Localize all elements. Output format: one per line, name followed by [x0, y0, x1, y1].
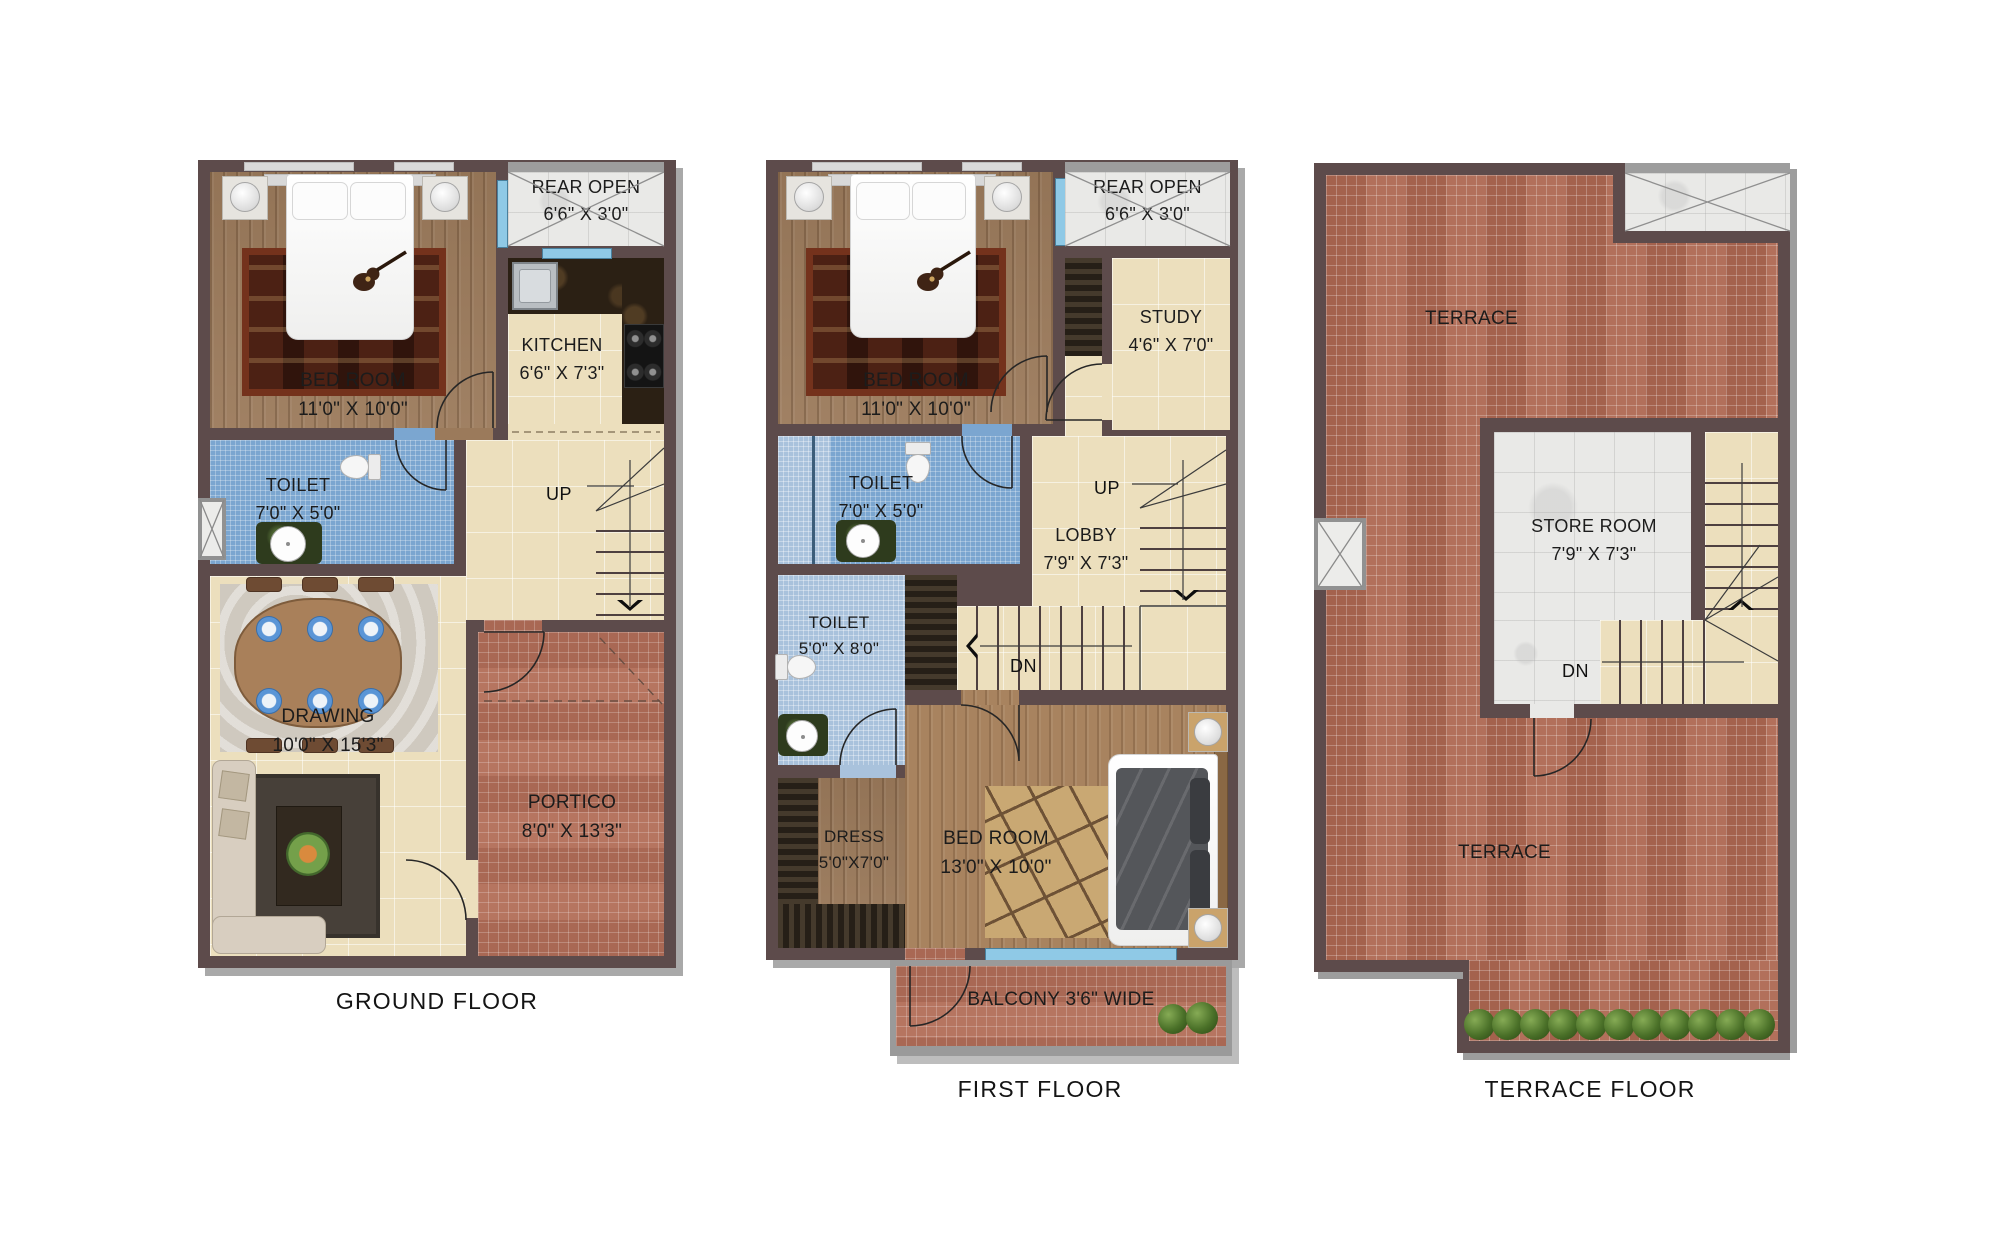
first-floor-plan: BED ROOM 11'0" X 10'0" REAR OPEN 6'6" X …: [766, 160, 1238, 1068]
lamp-icon: [430, 182, 460, 212]
plant-icon: [1660, 1009, 1691, 1040]
wash-basin: [846, 524, 880, 558]
plant-icon: [1716, 1009, 1747, 1040]
lamp-icon: [992, 182, 1022, 212]
pillow: [1190, 850, 1210, 916]
lamp-icon: [794, 182, 824, 212]
plate: [307, 616, 333, 642]
terrace-wall: [1778, 163, 1790, 1053]
sofa: [212, 916, 326, 954]
room-label-rear-open: REAR OPEN 6'6" X 3'0": [510, 174, 662, 228]
room-name: DRESS: [806, 824, 902, 850]
kitchen-opening: [508, 424, 664, 440]
pillow: [292, 182, 348, 220]
dining-chair: [302, 577, 338, 592]
floor-plan-sheet: BED ROOM 11'0" X 10'0" REAR OPEN 6'6" X …: [0, 0, 2000, 1235]
room-size: 7'0" X 5'0": [806, 498, 956, 526]
plant-icon: [1548, 1009, 1579, 1040]
room-label-dress: DRESS 5'0"X7'0": [806, 824, 902, 875]
stair-direction-down: DN: [1562, 661, 1589, 682]
room-size: 8'0" X 13'3": [484, 817, 660, 846]
balcony-block: BALCONY 3'6" WIDE: [890, 960, 1232, 1056]
plate: [256, 616, 282, 642]
bedroom-window: [962, 162, 1022, 171]
room-label-toilet2: TOILET 5'0" X 8'0": [780, 610, 898, 661]
bedroom-window: [812, 162, 922, 171]
dining-chair: [246, 577, 282, 592]
room-size: 11'0" X 10'0": [253, 395, 453, 424]
toilet1-door-opening: [962, 424, 1012, 436]
staircase-treads: [1705, 463, 1778, 620]
room-size: 7'9" X 7'3": [1509, 541, 1679, 569]
room-size: 5'0" X 8'0": [780, 636, 898, 662]
portico-door-opening: [466, 860, 478, 918]
room-label-study: STUDY 4'6" X 7'0": [1112, 304, 1230, 360]
pillow: [912, 182, 966, 220]
roof-band: [1318, 972, 1463, 979]
bedroom2-door-opening: [961, 690, 1019, 705]
pillow: [1190, 778, 1210, 844]
store-door-opening: [1530, 704, 1574, 718]
room-size: 6'6" X 3'0": [510, 201, 662, 228]
bay-wall: [1613, 231, 1790, 243]
room-name: LOBBY: [1011, 522, 1161, 550]
room-size: 5'0"X7'0": [806, 850, 902, 876]
lamp-icon: [1194, 914, 1222, 942]
room-label-lobby: LOBBY 7'9" X 7'3": [1011, 522, 1161, 578]
pillow: [856, 182, 910, 220]
store-wall: [1480, 704, 1790, 718]
terrace-floor-plan: DN STORE ROOM 7'9" X 7'3" TERRACE TERRAC…: [1314, 163, 1798, 1065]
room-name: TOILET: [780, 610, 898, 636]
stair-arrow-icon: [1173, 590, 1199, 601]
stair-direction-up: UP: [546, 484, 572, 505]
plant-icon: [1492, 1009, 1523, 1040]
plant-icon: [1520, 1009, 1551, 1040]
wash-basin: [786, 720, 818, 752]
room-label-rear-open: REAR OPEN 6'6" X 3'0": [1067, 174, 1228, 228]
room-label-terrace-bottom: TERRACE: [1442, 843, 1567, 864]
room-name: STORE ROOM: [1509, 513, 1679, 541]
room-name: PORTICO: [484, 788, 660, 817]
bedroom-window: [394, 162, 454, 171]
room-label-terrace-top: TERRACE: [1409, 309, 1534, 330]
plant-icon: [1604, 1009, 1635, 1040]
cushion: [218, 808, 250, 840]
plate: [358, 616, 384, 642]
room-label-toilet1: TOILET 7'0" X 5'0": [806, 470, 956, 526]
dining-chair: [358, 577, 394, 592]
lamp-icon: [230, 182, 260, 212]
room-label-bedroom2: BED ROOM 13'0" X 10'0": [916, 824, 1076, 883]
cushion: [218, 770, 250, 802]
plant-icon: [1158, 1004, 1188, 1034]
pillow: [350, 182, 406, 220]
wardrobe: [905, 575, 957, 690]
bedroom-side-window: [497, 180, 508, 248]
bedroom-window: [244, 162, 354, 171]
ground-floor-plan: BED ROOM 11'0" X 10'0" REAR OPEN 6'6" X …: [198, 160, 676, 968]
store-wall: [1480, 418, 1494, 718]
room-name: TOILET: [223, 472, 373, 500]
room-size: 11'0" X 10'0": [816, 395, 1016, 424]
room-size: 6'6" X 7'3": [504, 360, 620, 388]
room-size: 4'6" X 7'0": [1112, 332, 1230, 360]
plant-icon: [1744, 1009, 1775, 1040]
wardrobe: [778, 904, 905, 948]
stair-arrow-icon: [617, 600, 643, 611]
plant-icon: [1632, 1009, 1663, 1040]
roof-band: [1790, 169, 1797, 1053]
lamp-icon: [1194, 718, 1222, 746]
terrace-wall: [1314, 960, 1469, 972]
ground-floor-title: GROUND FLOOR: [198, 988, 676, 1015]
store-wall: [1480, 418, 1790, 432]
rear-open-roof: [1625, 173, 1790, 231]
room-size: 10'0" X 15'3": [228, 731, 428, 760]
toilet2-door-opening: [840, 765, 896, 778]
rear-open-sill: [508, 162, 664, 172]
room-size: 6'6" X 3'0": [1067, 201, 1228, 228]
duct-shaft: [1314, 518, 1366, 590]
room-label-toilet: TOILET 7'0" X 5'0": [223, 472, 373, 528]
portico-opening: [484, 620, 542, 632]
terrace-wall: [1457, 1041, 1790, 1053]
wash-basin: [270, 526, 306, 562]
room-label-portico: PORTICO 8'0" X 13'3": [484, 788, 660, 847]
room-name: REAR OPEN: [510, 174, 662, 201]
plant-icon: [1464, 1009, 1495, 1040]
room-label-bedroom: BED ROOM 11'0" X 10'0": [253, 366, 453, 425]
staircase-down: [957, 606, 1140, 690]
room-name: DRAWING: [228, 702, 428, 731]
wardrobe: [1065, 258, 1102, 356]
room-size: 7'0" X 5'0": [223, 500, 373, 528]
room-label-kitchen: KITCHEN 6'6" X 7'3": [504, 332, 620, 388]
room-name: REAR OPEN: [1067, 174, 1228, 201]
stove-icon: [624, 324, 664, 388]
roof-band: [1613, 163, 1790, 173]
room-name: TOILET: [806, 470, 956, 498]
kitchen-window: [542, 248, 612, 259]
first-floor-title: FIRST FLOOR: [830, 1076, 1250, 1103]
balcony-door-opening: [905, 948, 965, 960]
room-label-drawing: DRAWING 10'0" X 15'3": [228, 702, 428, 761]
rear-open-sill: [1065, 162, 1230, 172]
stair-arrow-icon: [966, 633, 977, 659]
room-name: BED ROOM: [816, 366, 1016, 395]
plant-icon: [1688, 1009, 1719, 1040]
plant-icon: [1576, 1009, 1607, 1040]
flower-vase-icon: [286, 832, 330, 876]
room-name: BED ROOM: [916, 824, 1076, 853]
duct-shaft: [198, 498, 226, 560]
room-name: BED ROOM: [253, 366, 453, 395]
study-door-opening: [1102, 364, 1112, 420]
stair-direction-down: DN: [1010, 656, 1037, 677]
room-size: 13'0" X 10'0": [916, 853, 1076, 882]
room-name: KITCHEN: [504, 332, 620, 360]
room-name: STUDY: [1112, 304, 1230, 332]
roof-band: [1463, 1053, 1790, 1060]
room-label-store: STORE ROOM 7'9" X 7'3": [1509, 513, 1679, 569]
room-size: 7'9" X 7'3": [1011, 550, 1161, 578]
kitchen-sink: [512, 262, 558, 310]
store-wall: [1691, 432, 1705, 620]
stair-direction-up: UP: [1094, 478, 1120, 499]
stair-arrow-icon: [1728, 599, 1754, 610]
terrace-floor-title: TERRACE FLOOR: [1380, 1076, 1800, 1103]
plant-icon: [1186, 1002, 1218, 1034]
bedroom-door-opening: [435, 428, 493, 440]
room-label-bedroom1: BED ROOM 11'0" X 10'0": [816, 366, 1016, 425]
staircase-treads: [1600, 620, 1705, 704]
